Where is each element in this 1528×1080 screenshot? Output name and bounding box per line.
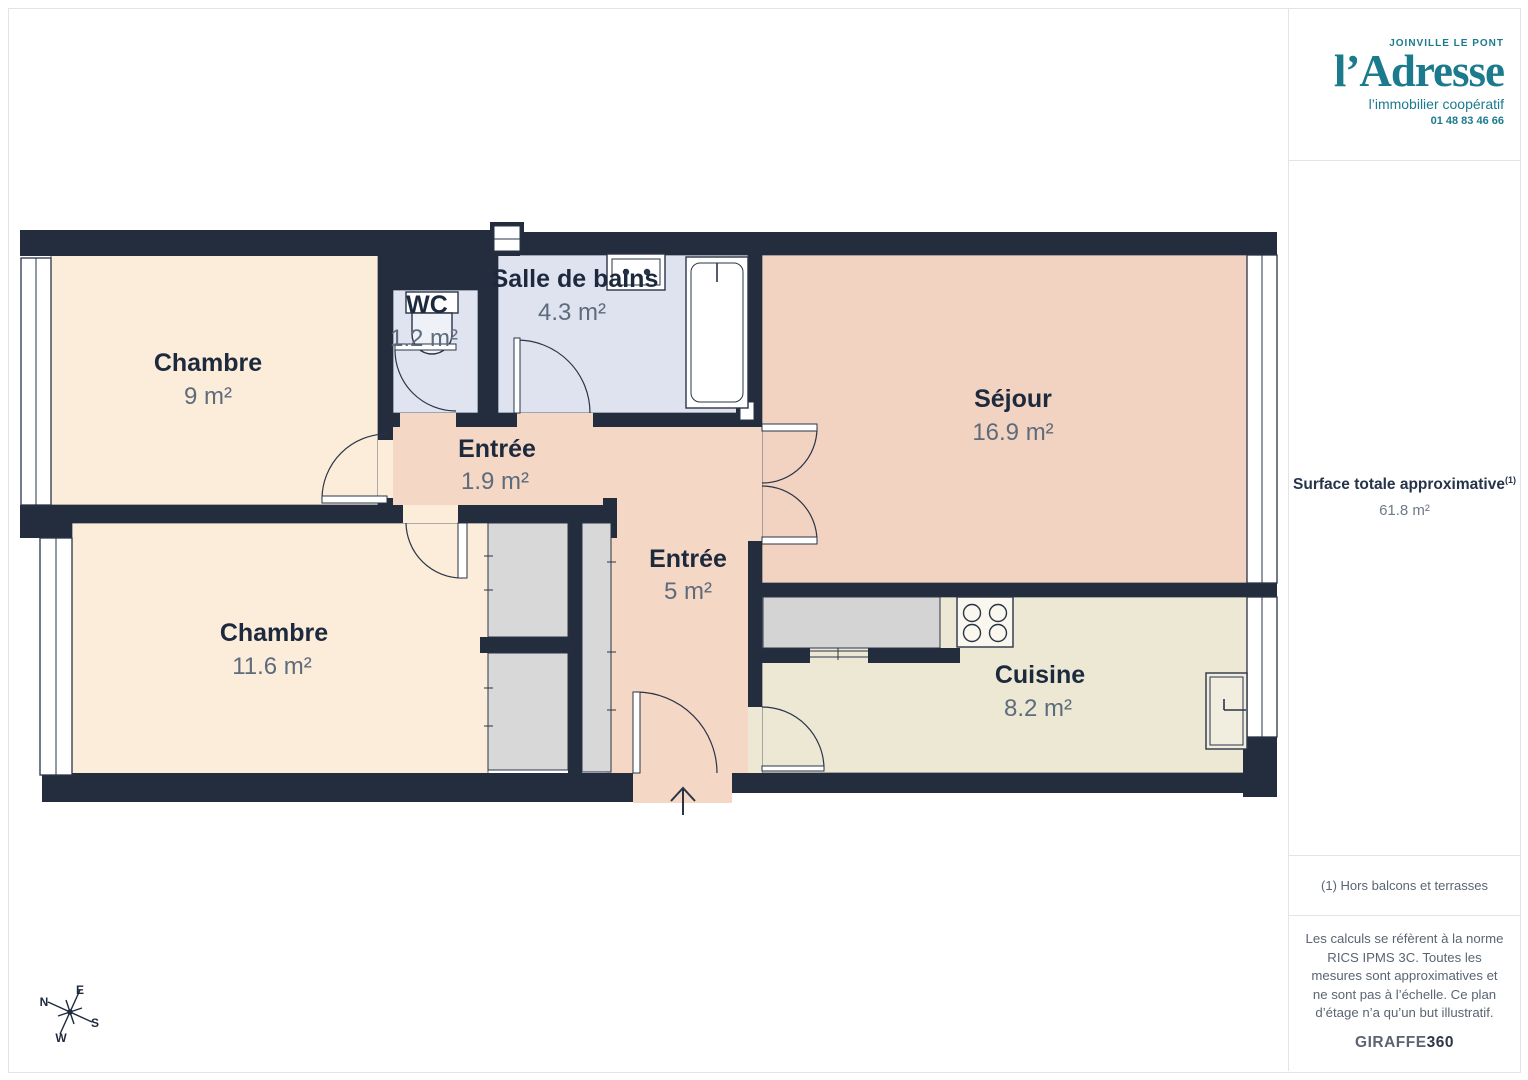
room-chambre-11 (72, 523, 488, 775)
kitchen-counter (763, 597, 940, 648)
measurement-disclaimer: Les calculs se réfèrent à la norme RICS … (1289, 930, 1520, 1023)
area-entree-2: 5 m² (664, 578, 712, 605)
compass-e: E (76, 983, 84, 997)
compass-n: N (40, 995, 49, 1009)
area-salle-de-bains: 4.3 m² (538, 299, 606, 326)
room-chambre-9-door-gap (378, 440, 393, 500)
label-sejour: Séjour (974, 385, 1052, 413)
compass-rose-icon: N E S W (40, 983, 99, 1045)
area-sejour: 16.9 m² (972, 419, 1053, 446)
total-surface: Surface totale approximative(1) 61.8 m² (1289, 475, 1520, 519)
total-surface-value: 61.8 m² (1289, 502, 1520, 519)
kitchen-cabinet (1206, 673, 1247, 749)
giraffe360-logo: GIRAFFE360 (1289, 1034, 1520, 1052)
room-chambre-9 (51, 255, 378, 505)
compass-w: W (55, 1031, 67, 1045)
window-chambre-9 (21, 258, 51, 505)
sidebar-divider (1289, 855, 1520, 856)
surface-label-sup: (1) (1505, 475, 1516, 485)
area-wc: 1.2 m² (390, 325, 458, 352)
window-sejour (1247, 255, 1277, 583)
compass-s: S (91, 1016, 99, 1030)
surface-footnote: (1) Hors balcons et terrasses (1289, 878, 1520, 893)
agency-phone: 01 48 83 46 66 (1289, 115, 1504, 127)
label-entree-2: Entrée (649, 545, 727, 573)
label-entree-1: Entrée (458, 435, 536, 463)
stove (957, 597, 1013, 647)
giraffe360-suffix: 360 (1427, 1034, 1454, 1051)
agency-logo: JOINVILLE LE PONT l’Adresse l’immobilier… (1289, 38, 1504, 127)
label-chambre-9: Chambre (154, 349, 262, 377)
window-cuisine (1247, 597, 1277, 737)
sidebar-divider (1289, 160, 1520, 161)
info-sidebar: JOINVILLE LE PONT l’Adresse l’immobilier… (1288, 8, 1520, 1071)
sejour-door-gap (748, 427, 762, 541)
closet-lower (488, 653, 568, 770)
label-salle-de-bains: Salle de bains (492, 265, 659, 293)
area-chambre-11: 11.6 m² (232, 653, 312, 680)
area-chambre-9: 9 m² (184, 383, 232, 410)
surface-label-text: Surface totale approximative (1293, 476, 1505, 493)
giraffe360-name: GIRAFFE (1355, 1034, 1427, 1051)
label-chambre-11: Chambre (220, 619, 328, 647)
agency-tagline: l’immobilier coopératif (1289, 96, 1504, 112)
agency-brand: l’Adresse (1289, 49, 1504, 94)
sidebar-divider (1289, 915, 1520, 916)
chambre-11-door-gap (403, 505, 458, 523)
label-cuisine: Cuisine (995, 661, 1085, 689)
area-cuisine: 8.2 m² (1004, 695, 1072, 722)
cuisine-door-gap (748, 707, 762, 773)
total-surface-label: Surface totale approximative(1) (1289, 475, 1520, 494)
closet-entree (582, 523, 611, 772)
closet-upper (488, 523, 568, 637)
area-entree-1: 1.9 m² (461, 468, 529, 495)
label-wc: WC (406, 291, 448, 319)
bathtub (686, 257, 748, 408)
window-chambre-11 (40, 538, 72, 775)
floorplan-page: Chambre 9 m² WC 1.2 m² Salle de bains 4.… (0, 0, 1528, 1080)
